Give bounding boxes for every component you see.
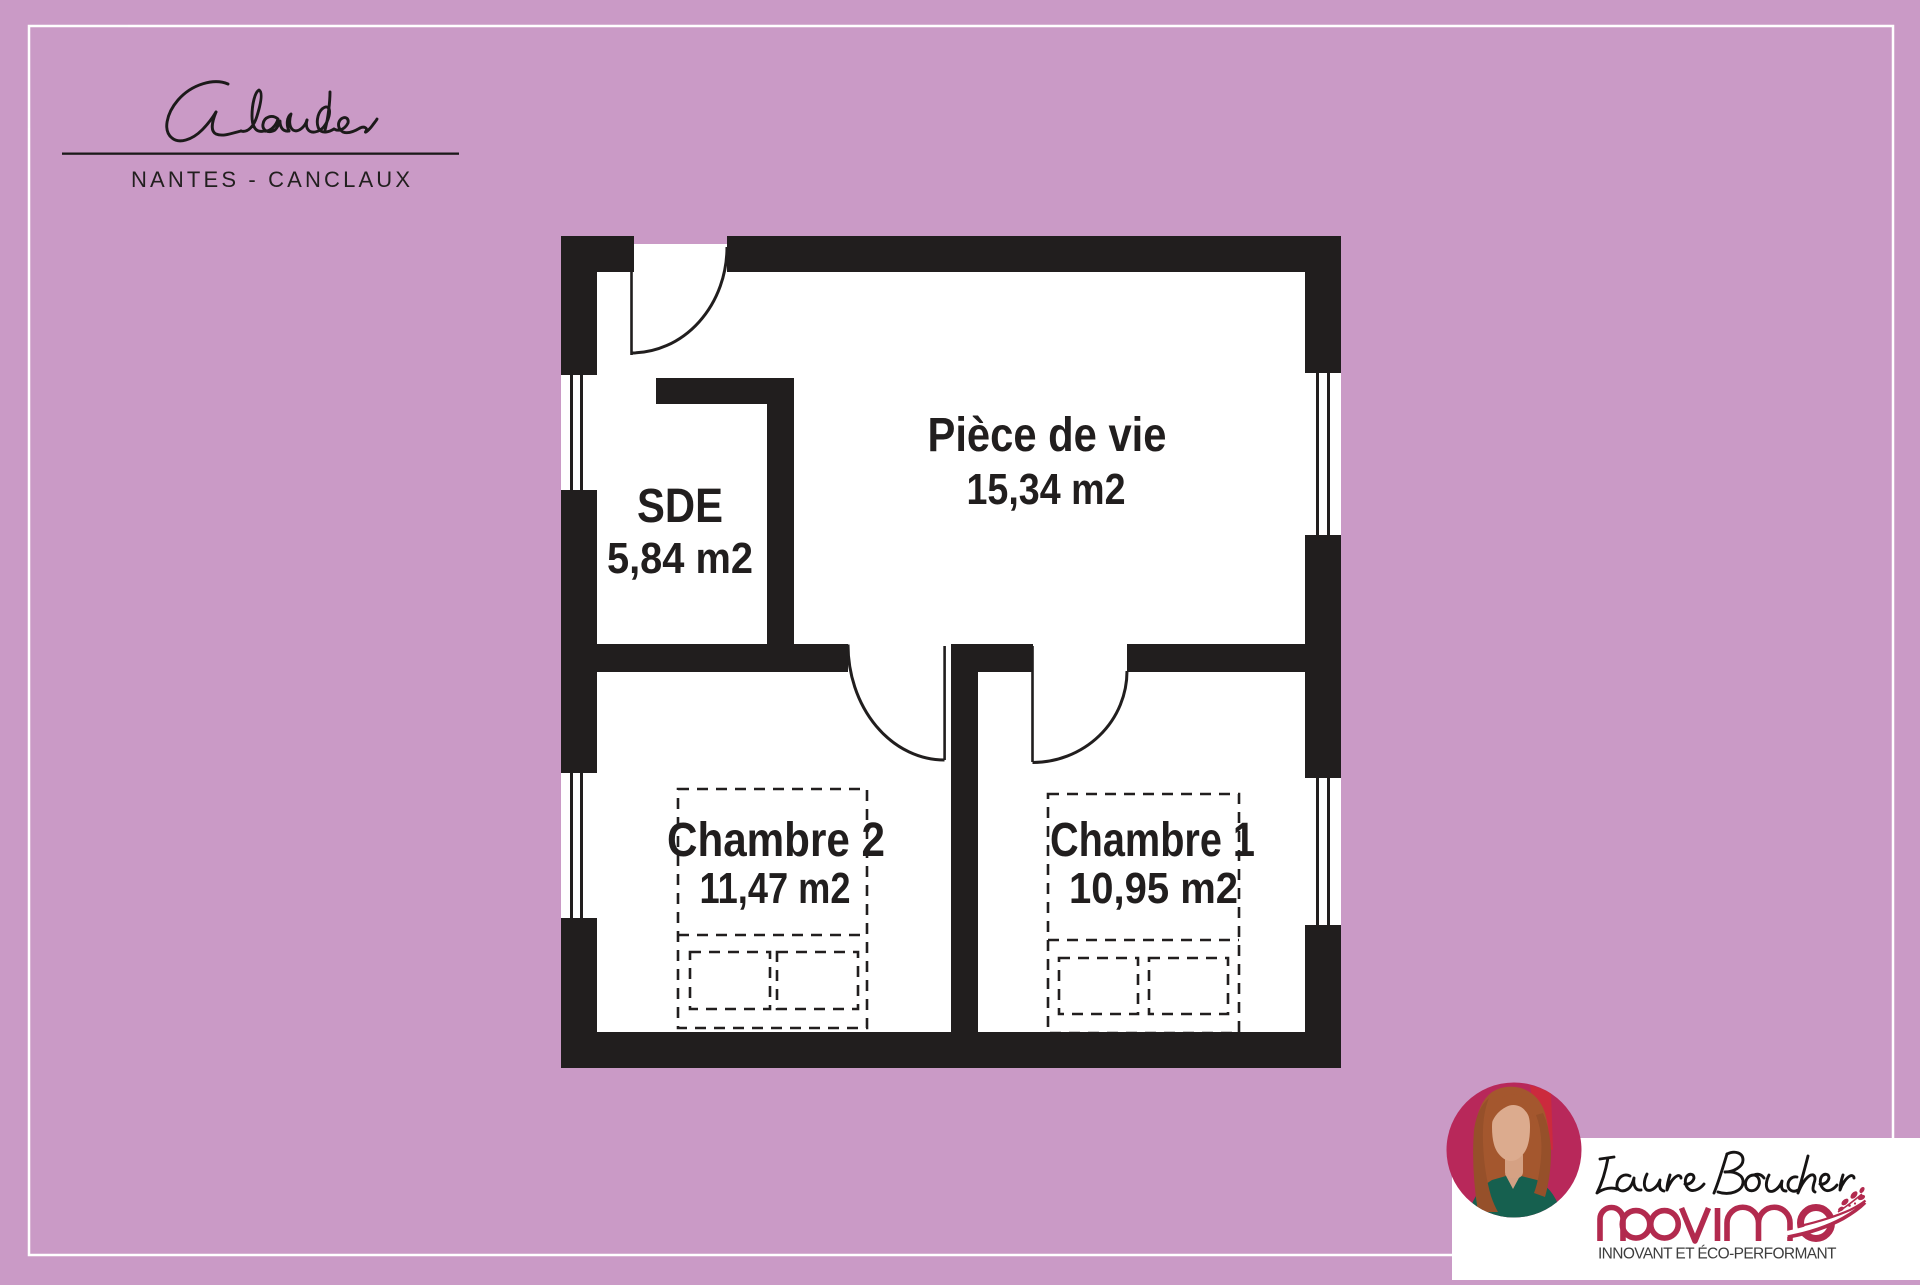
svg-text:SDE: SDE (637, 480, 723, 533)
svg-text:Pièce de vie: Pièce de vie (928, 409, 1167, 462)
svg-text:Chambre 2: Chambre 2 (667, 814, 885, 867)
svg-text:11,47 m2: 11,47 m2 (700, 864, 851, 913)
svg-text:Chambre 1: Chambre 1 (1050, 814, 1255, 867)
svg-text:10,95 m2: 10,95 m2 (1069, 864, 1238, 913)
svg-text:5,84 m2: 5,84 m2 (607, 534, 753, 583)
svg-text:INNOVANT ET ÉCO-PERFORMANT: INNOVANT ET ÉCO-PERFORMANT (1598, 1246, 1838, 1263)
svg-text:NANTES - CANCLAUX: NANTES - CANCLAUX (131, 167, 416, 192)
svg-text:15,34 m2: 15,34 m2 (967, 465, 1126, 514)
